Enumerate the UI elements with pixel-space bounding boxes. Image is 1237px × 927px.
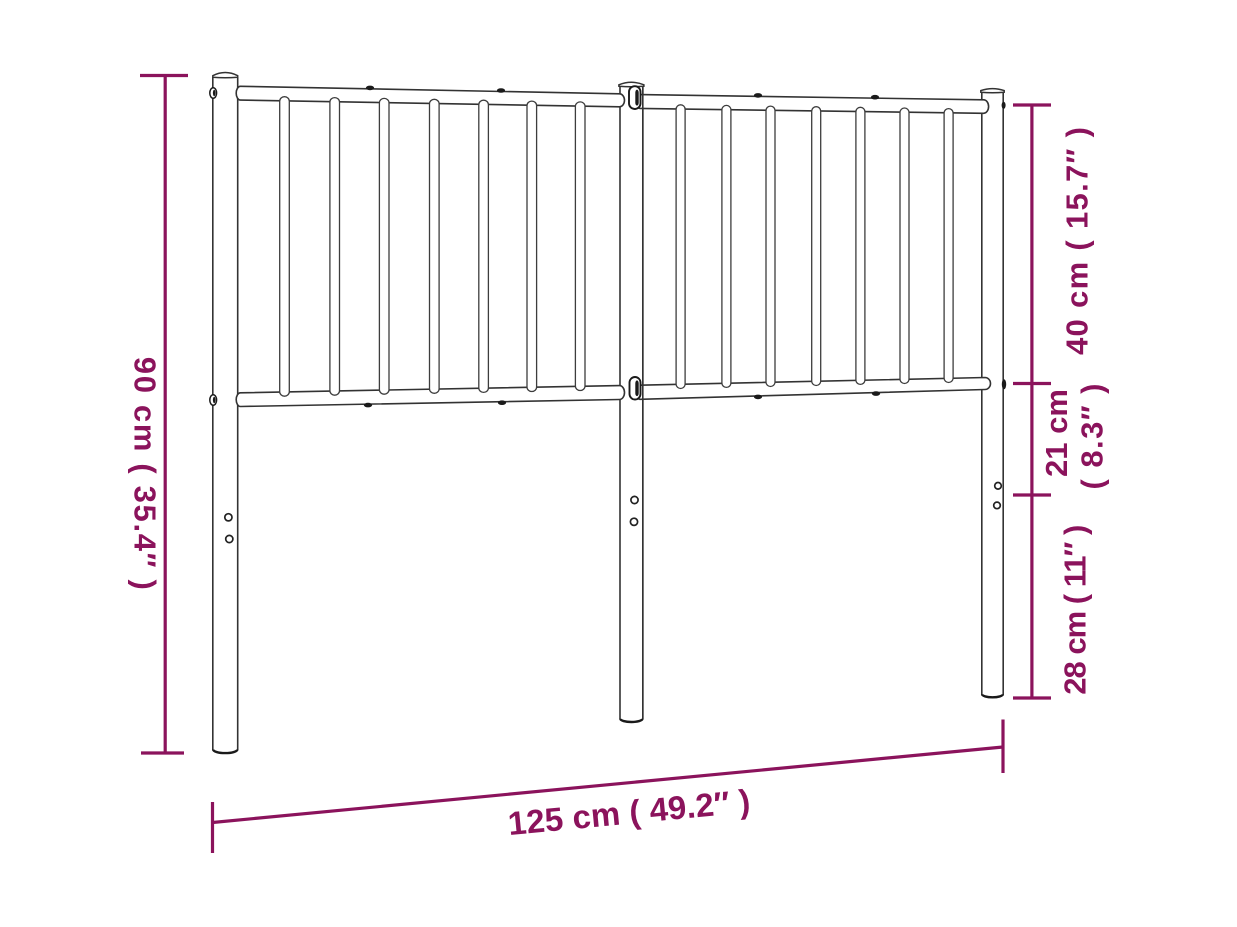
svg-text:90 cm ( 35.4″ ): 90 cm ( 35.4″ )	[128, 357, 163, 590]
svg-text:21 cm: 21 cm	[1039, 389, 1074, 477]
svg-text:28 cm ( 11″ ): 28 cm ( 11″ )	[1058, 525, 1093, 695]
svg-text:40 cm ( 15.7″ ): 40 cm ( 15.7″ )	[1060, 127, 1095, 355]
svg-text:( 8.3″ ): ( 8.3″ )	[1075, 384, 1110, 490]
